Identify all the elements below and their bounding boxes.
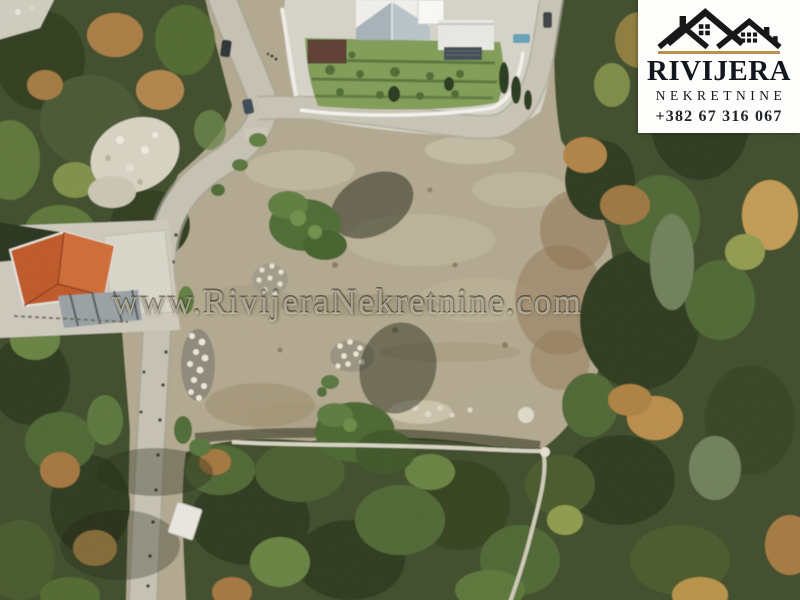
agency-logo-plate: RIVIJERA NEKRETNINE +382 67 316 067 bbox=[638, 0, 800, 133]
phone-number: +382 67 316 067 bbox=[655, 108, 782, 126]
brand-name: RIVIJERA bbox=[647, 56, 791, 86]
gold-divider bbox=[658, 51, 780, 54]
aerial-photo: www.RivijeraNekretnine.com RIVIJERA NEKR… bbox=[0, 0, 800, 600]
twin-house-roofs-icon bbox=[656, 5, 782, 49]
brand-subtitle: NEKRETNINE bbox=[652, 88, 786, 104]
